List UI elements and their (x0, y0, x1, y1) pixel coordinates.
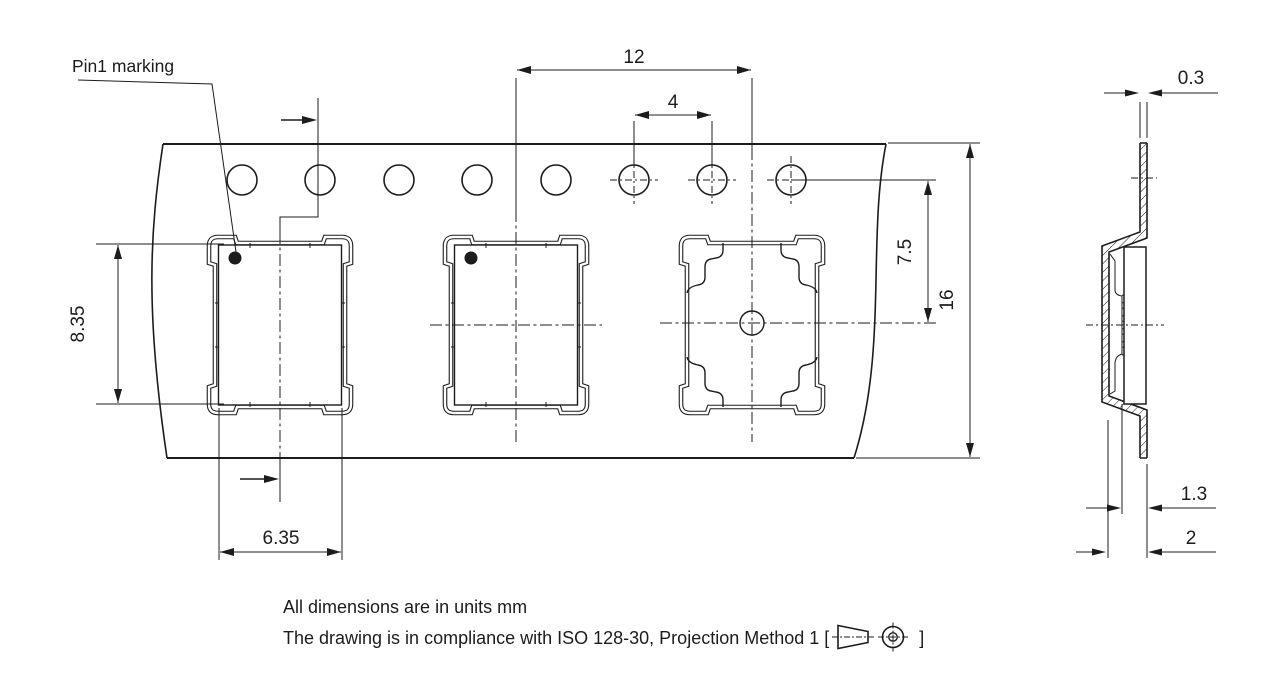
corner-gusset (687, 357, 723, 407)
pin1-marking-dot (465, 252, 478, 265)
dim-inner-depth: 1.3 (1086, 404, 1216, 514)
section-cut-line (240, 98, 318, 502)
dim-pocket-length: 8.35 (68, 244, 224, 404)
note-compliance-text: The drawing is in compliance with ISO 12… (283, 628, 829, 648)
dim-hole-to-center: 7.5 (791, 180, 936, 322)
note-compliance-bracket: ] (919, 628, 924, 648)
drawing-notes: All dimensions are in units mm The drawi… (283, 592, 924, 653)
dim-pocket-pitch: 12 (517, 47, 751, 74)
sprocket-hole (305, 165, 335, 195)
note-compliance: The drawing is in compliance with ISO 12… (283, 622, 924, 653)
dim-tape-thickness-text: 0.3 (1178, 68, 1204, 89)
pocket-inner-contour (1110, 254, 1122, 394)
tape-break-line-left (152, 144, 167, 458)
section-arrow-top (302, 116, 317, 124)
dim-hole-pitch-text: 4 (668, 92, 679, 113)
sprocket-hole (227, 165, 257, 195)
dim-pocket-length-text: 8.35 (68, 306, 89, 343)
dim-total-depth-text: 2 (1186, 528, 1197, 549)
dim-pocket-pitch-text: 12 (623, 47, 644, 68)
sprocket-hole (541, 165, 571, 195)
dim-hole-to-center-text: 7.5 (895, 239, 916, 265)
side-view (1086, 143, 1164, 458)
sprocket-hole (384, 165, 414, 195)
corner-gusset (781, 243, 817, 293)
dim-tape-width: 16 (856, 143, 980, 458)
dim-tape-width-text: 16 (937, 289, 958, 310)
sprocket-hole (462, 165, 492, 195)
dim-tape-thickness: 0.3 (1104, 68, 1218, 138)
dim-pocket-width-text: 6.35 (263, 528, 300, 549)
note-units: All dimensions are in units mm (283, 592, 924, 622)
pin1-marking-dot (229, 252, 242, 265)
section-line-top (280, 98, 318, 232)
corner-gusset (687, 243, 723, 293)
section-arrow-bottom (264, 475, 279, 483)
tape-top-view (152, 78, 936, 458)
dim-hole-pitch: 4 (634, 92, 712, 166)
tape-break-line-right (854, 144, 886, 458)
pin1-label: Pin1 marking (72, 56, 174, 76)
pin1-leader-line (78, 80, 236, 252)
dim-inner-depth-text: 1.3 (1181, 484, 1207, 505)
sprocket-holes (227, 156, 815, 204)
drawing-canvas: Pin1 marking 12 4 8.35 6.35 (0, 0, 1280, 698)
corner-gusset (781, 357, 817, 407)
first-angle-projection-icon (832, 622, 916, 652)
